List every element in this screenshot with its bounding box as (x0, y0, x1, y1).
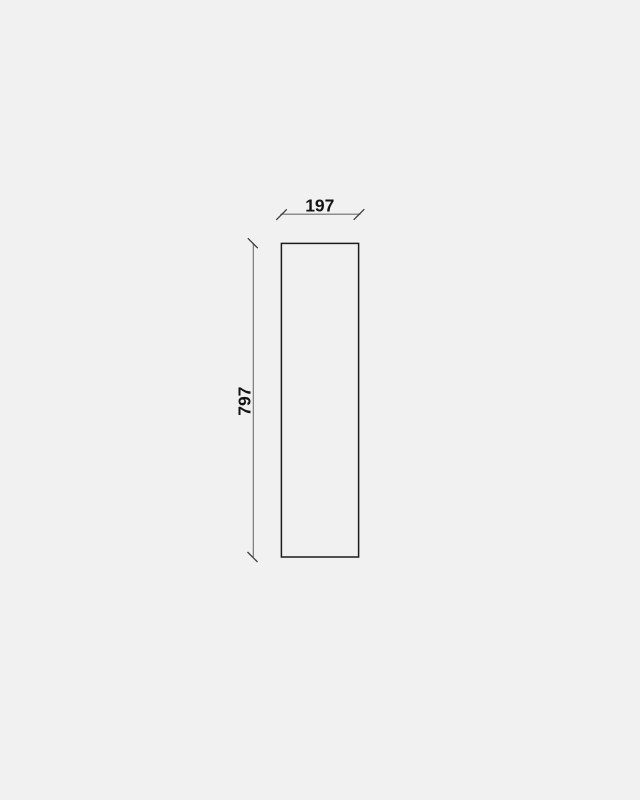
svg-text:797: 797 (235, 387, 255, 416)
svg-text:197: 197 (305, 195, 334, 215)
